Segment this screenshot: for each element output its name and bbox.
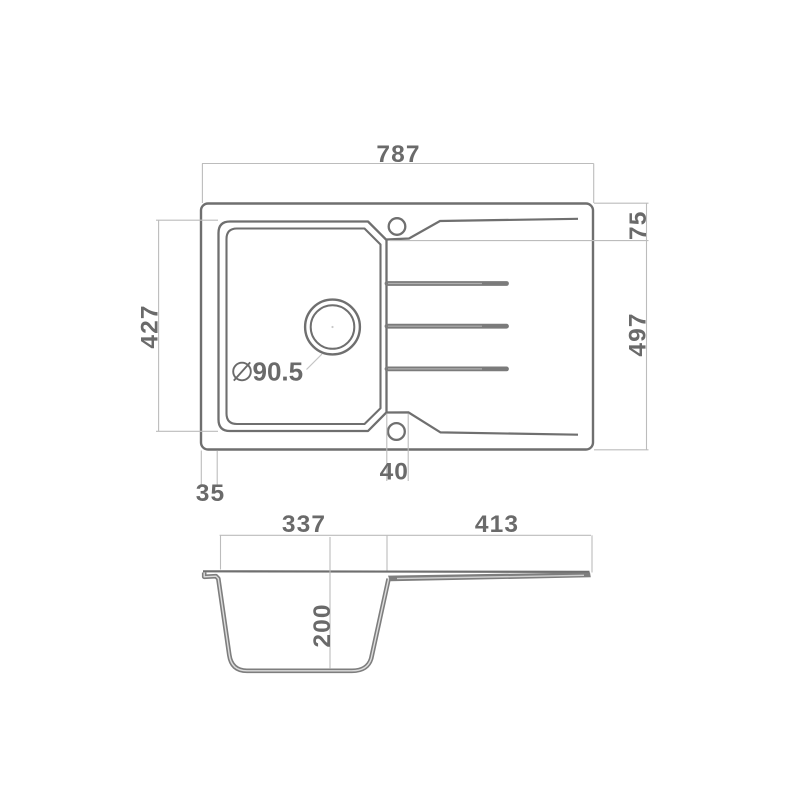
svg-text:787: 787 — [376, 141, 420, 168]
svg-text:427: 427 — [137, 304, 164, 348]
svg-text:497: 497 — [625, 312, 652, 356]
svg-text:40: 40 — [380, 459, 409, 486]
svg-text:75: 75 — [625, 211, 652, 240]
svg-text:35: 35 — [196, 480, 225, 507]
svg-text:337: 337 — [282, 511, 326, 538]
svg-text:413: 413 — [475, 511, 519, 538]
svg-text:200: 200 — [309, 603, 336, 647]
svg-text:90.5: 90.5 — [253, 356, 304, 386]
